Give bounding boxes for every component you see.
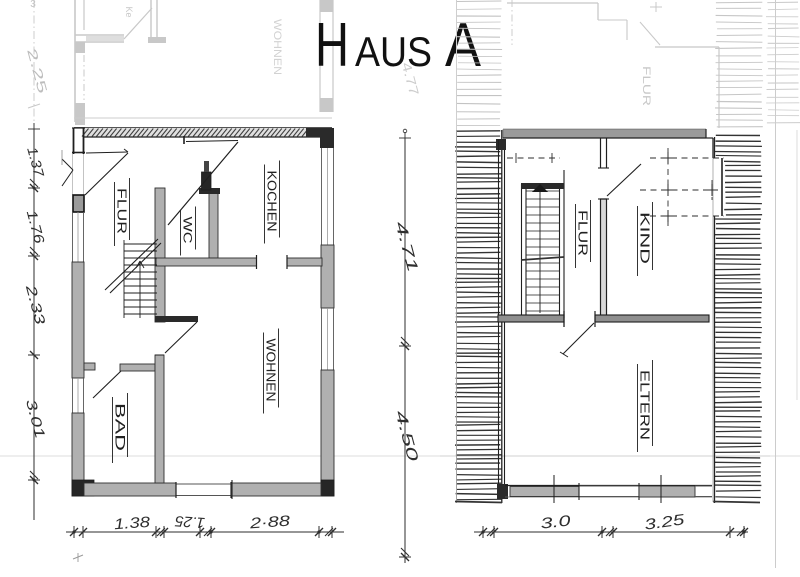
svg-text:Ke: Ke [124, 6, 134, 17]
svg-text:3.0: 3.0 [540, 512, 573, 532]
svg-text:ELTERN: ELTERN [638, 370, 653, 440]
svg-text:FLUR: FLUR [640, 66, 652, 106]
svg-text:WC: WC [181, 217, 195, 244]
svg-text:1.38: 1.38 [113, 514, 151, 534]
svg-text:1.25: 1.25 [174, 512, 206, 531]
svg-text:WOHNEN: WOHNEN [271, 19, 283, 75]
svg-text:3: 3 [30, 0, 36, 10]
svg-text:FLUR: FLUR [576, 210, 591, 256]
svg-text:H: H [315, 11, 349, 80]
svg-text:AUS: AUS [355, 28, 432, 75]
svg-text:FLUR: FLUR [115, 188, 130, 234]
svg-text:KOCHEN: KOCHEN [265, 171, 280, 232]
svg-text:WOHNEN: WOHNEN [264, 339, 279, 402]
svg-text:KIND: KIND [638, 212, 653, 264]
svg-text:2·88: 2·88 [248, 513, 291, 533]
svg-text:BAD: BAD [113, 403, 129, 451]
